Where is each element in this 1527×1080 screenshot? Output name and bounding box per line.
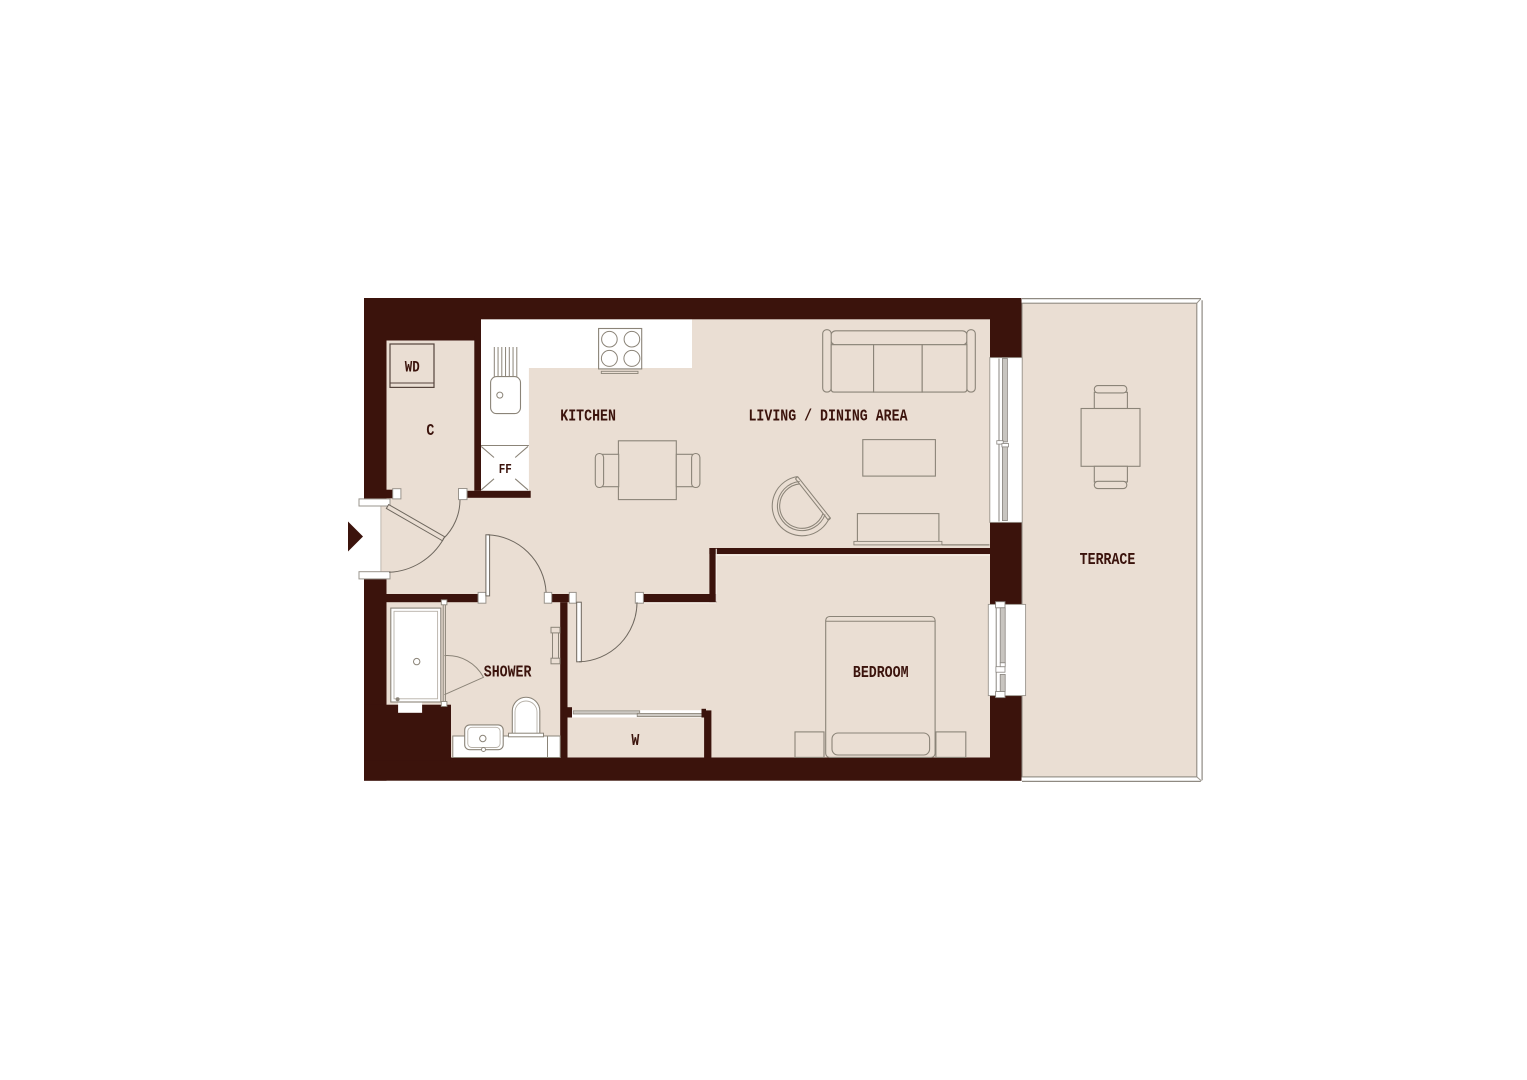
svg-text:W: W — [631, 731, 640, 751]
svg-text:BEDROOM: BEDROOM — [853, 663, 909, 683]
svg-text:SHOWER: SHOWER — [484, 662, 532, 682]
svg-text:C: C — [426, 420, 434, 440]
svg-text:TERRACE: TERRACE — [1080, 549, 1136, 569]
svg-text:KITCHEN: KITCHEN — [560, 406, 616, 426]
svg-text:WD: WD — [405, 359, 420, 377]
svg-text:LIVING / DINING AREA: LIVING / DINING AREA — [748, 406, 908, 426]
svg-text:FF: FF — [499, 462, 512, 478]
